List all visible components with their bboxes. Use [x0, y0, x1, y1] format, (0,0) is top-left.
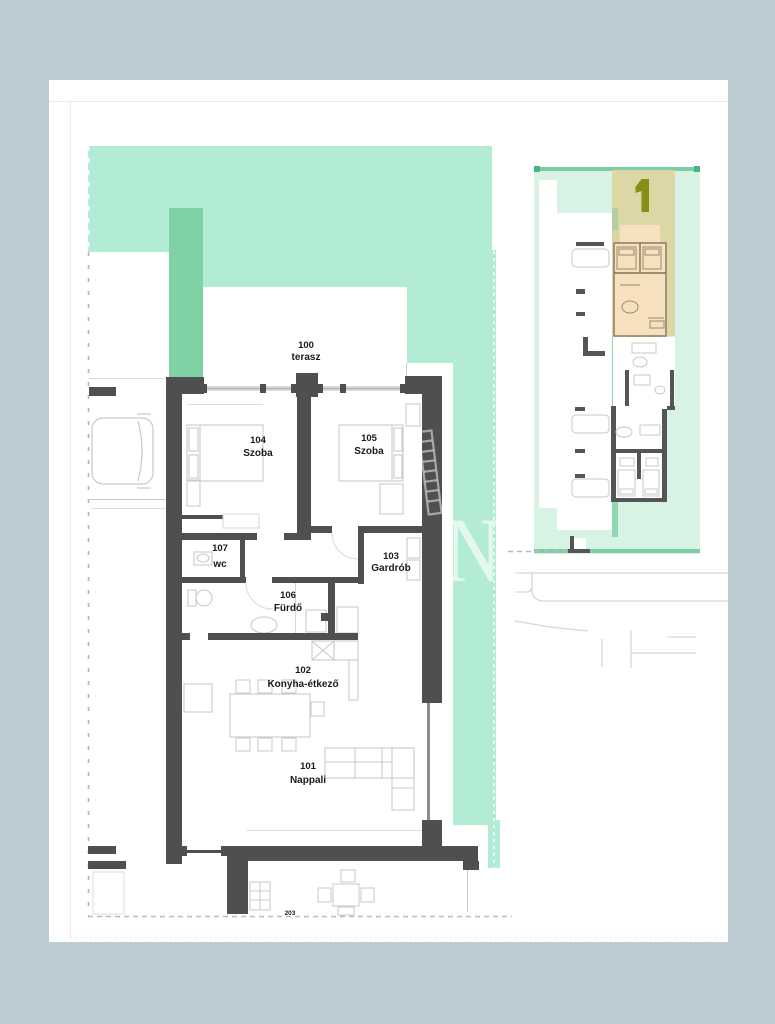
svg-text:Fürdő: Fürdő — [274, 603, 302, 614]
svg-text:Konyha-étkező: Konyha-étkező — [267, 679, 338, 690]
svg-text:105: 105 — [361, 433, 378, 444]
svg-text:Nappali: Nappali — [290, 775, 326, 786]
svg-text:103: 103 — [383, 551, 399, 562]
svg-text:203: 203 — [285, 910, 296, 917]
svg-text:107: 107 — [212, 543, 228, 554]
svg-text:wc: wc — [212, 559, 227, 570]
svg-text:104: 104 — [250, 435, 267, 446]
svg-text:terasz: terasz — [292, 352, 321, 363]
svg-text:Szoba: Szoba — [354, 446, 384, 457]
svg-text:Gardrób: Gardrób — [371, 563, 410, 574]
svg-text:Szoba: Szoba — [243, 448, 273, 459]
svg-text:102: 102 — [295, 665, 311, 676]
svg-text:N: N — [445, 500, 501, 602]
svg-text:100: 100 — [298, 340, 314, 351]
svg-text:101: 101 — [300, 761, 317, 772]
svg-text:106: 106 — [280, 590, 296, 601]
